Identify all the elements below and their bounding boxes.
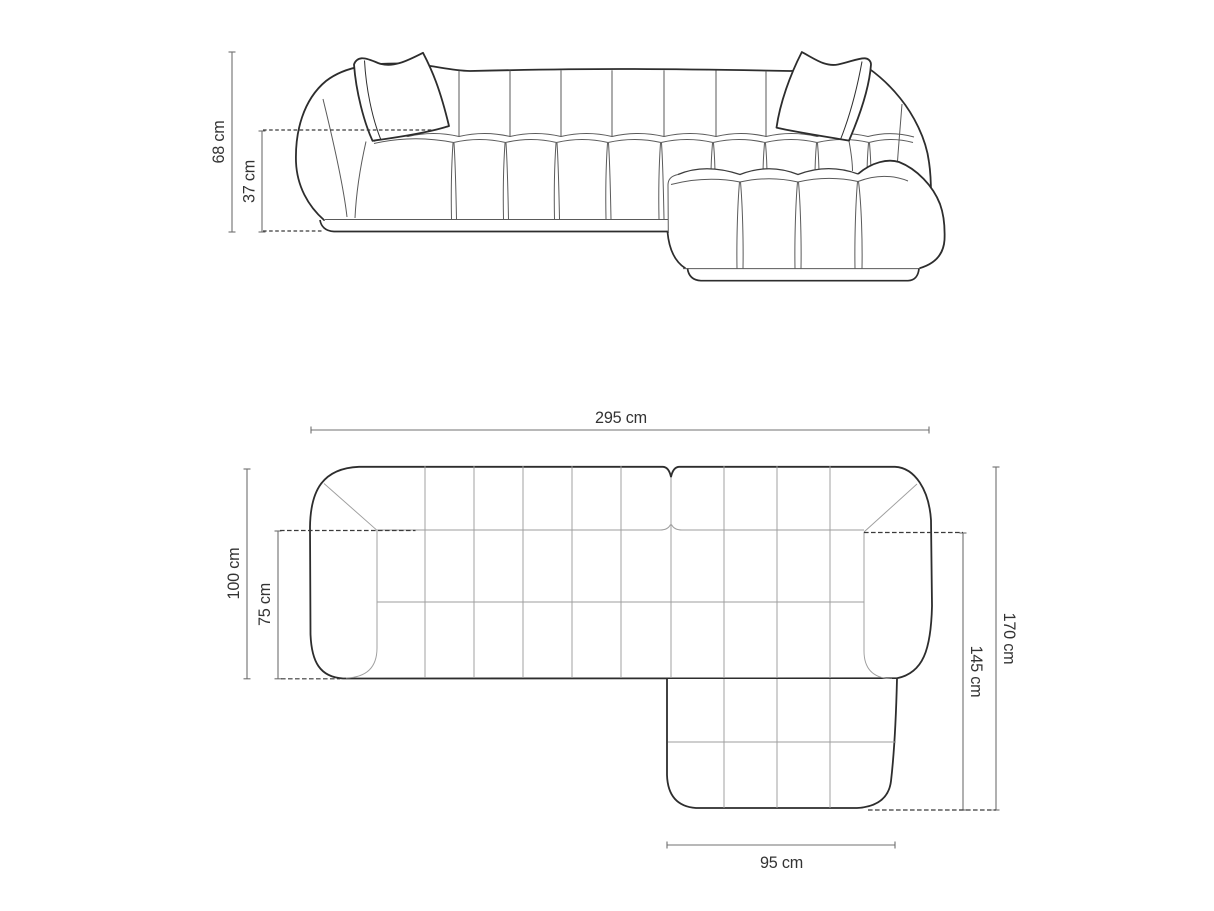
svg-text:68 cm: 68 cm [210, 120, 228, 163]
svg-text:295 cm: 295 cm [595, 409, 647, 427]
svg-text:95 cm: 95 cm [760, 854, 803, 872]
svg-text:75 cm: 75 cm [256, 583, 274, 626]
svg-text:100 cm: 100 cm [225, 548, 243, 600]
svg-text:37 cm: 37 cm [241, 160, 259, 203]
svg-text:145 cm: 145 cm [967, 646, 985, 698]
svg-text:170 cm: 170 cm [1000, 613, 1018, 665]
